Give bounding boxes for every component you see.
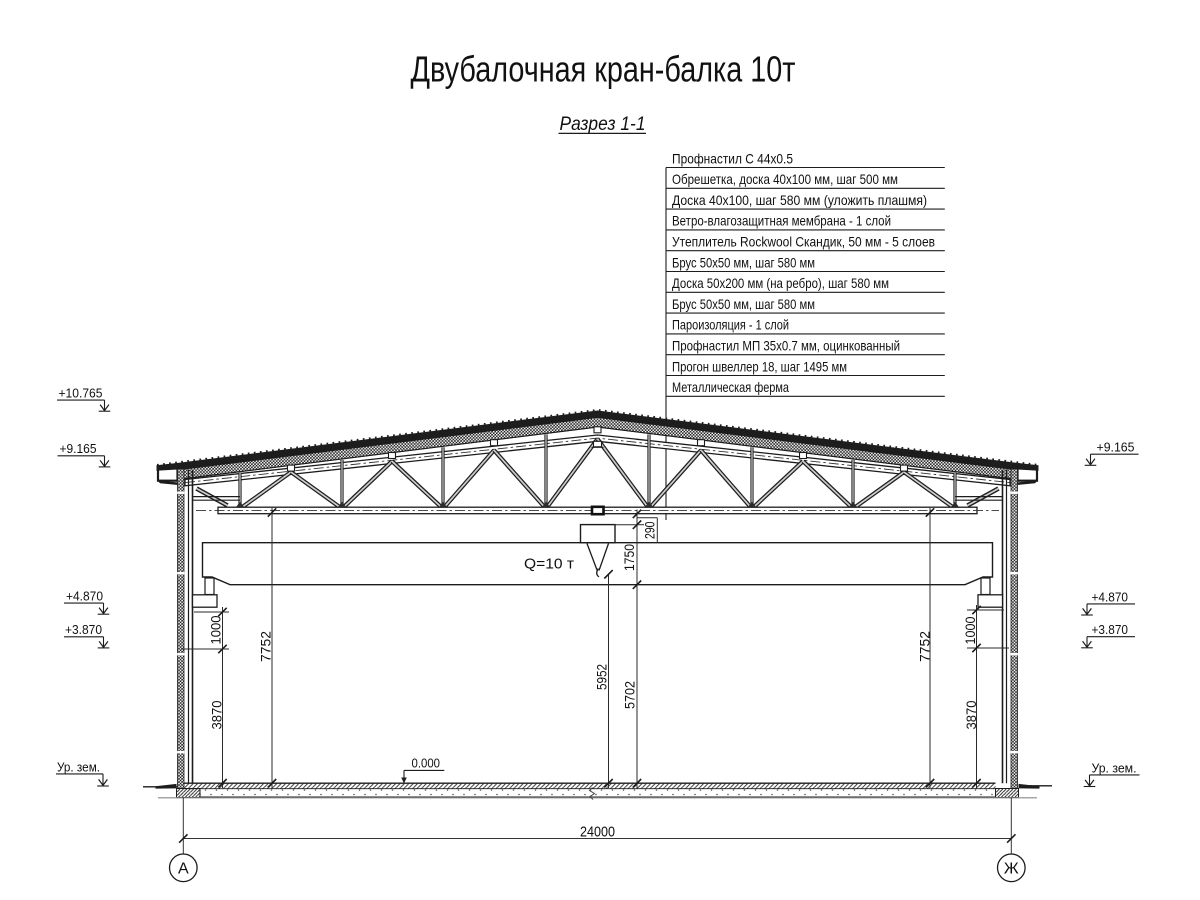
svg-text:Обрешетка, доска 40х100 мм, ша: Обрешетка, доска 40х100 мм, шаг 500 мм [672, 171, 898, 187]
svg-text:Ур. зем.: Ур. зем. [1092, 761, 1137, 775]
svg-text:Ж: Ж [1004, 860, 1019, 877]
svg-text:+3.870: +3.870 [65, 623, 102, 637]
svg-text:Q=10 т: Q=10 т [524, 556, 574, 573]
svg-text:Пароизоляция - 1 слой: Пароизоляция - 1 слой [672, 317, 789, 333]
svg-text:1000: 1000 [962, 616, 978, 644]
svg-text:Профнастил МП 35х0.7 мм, оцинк: Профнастил МП 35х0.7 мм, оцинкованный [672, 338, 900, 354]
svg-text:Двубалочная кран-балка 10т: Двубалочная кран-балка 10т [411, 49, 796, 90]
svg-text:1750: 1750 [621, 544, 637, 571]
svg-text:Разрез 1-1: Разрез 1-1 [560, 114, 646, 135]
svg-text:3870: 3870 [963, 700, 979, 729]
svg-text:Утеплитель Rockwool Скандик, 5: Утеплитель Rockwool Скандик, 50 мм - 5 с… [672, 234, 935, 250]
svg-text:Доска 40х100, шаг 580 мм (улож: Доска 40х100, шаг 580 мм (уложить плашмя… [672, 192, 927, 208]
svg-text:Ветро-влагозащитная мембрана -: Ветро-влагозащитная мембрана - 1 слой [672, 213, 891, 229]
svg-text:Брус 50х50 мм, шаг 580 мм: Брус 50х50 мм, шаг 580 мм [672, 254, 815, 270]
svg-text:Брус 50х50 мм, шаг 580 мм: Брус 50х50 мм, шаг 580 мм [672, 296, 815, 312]
svg-text:290: 290 [642, 521, 658, 539]
svg-text:+4.870: +4.870 [66, 590, 103, 604]
svg-text:Ур. зем.: Ур. зем. [57, 760, 100, 774]
svg-text:+10.765: +10.765 [59, 387, 103, 401]
svg-text:0.000: 0.000 [412, 756, 441, 771]
svg-text:5952: 5952 [594, 664, 610, 690]
svg-text:+4.870: +4.870 [1092, 590, 1129, 604]
svg-text:А: А [178, 860, 189, 877]
svg-text:7752: 7752 [258, 631, 274, 662]
svg-text:7752: 7752 [917, 631, 933, 662]
svg-text:+9.165: +9.165 [1097, 441, 1135, 455]
svg-text:5702: 5702 [622, 681, 638, 709]
svg-text:Металлическая ферма: Металлическая ферма [672, 379, 789, 395]
svg-text:+9.165: +9.165 [60, 442, 97, 456]
svg-text:Профнастил С 44х0.5: Профнастил С 44х0.5 [672, 150, 793, 166]
svg-text:Доска 50х200 мм (на ребро), ша: Доска 50х200 мм (на ребро), шаг 580 мм [672, 275, 889, 291]
svg-text:Прогон швеллер 18, шаг 1495 мм: Прогон швеллер 18, шаг 1495 мм [672, 358, 847, 374]
svg-text:3870: 3870 [209, 700, 225, 729]
svg-text:1000: 1000 [208, 615, 224, 644]
svg-text:24000: 24000 [580, 824, 615, 841]
svg-text:+3.870: +3.870 [1092, 623, 1129, 637]
